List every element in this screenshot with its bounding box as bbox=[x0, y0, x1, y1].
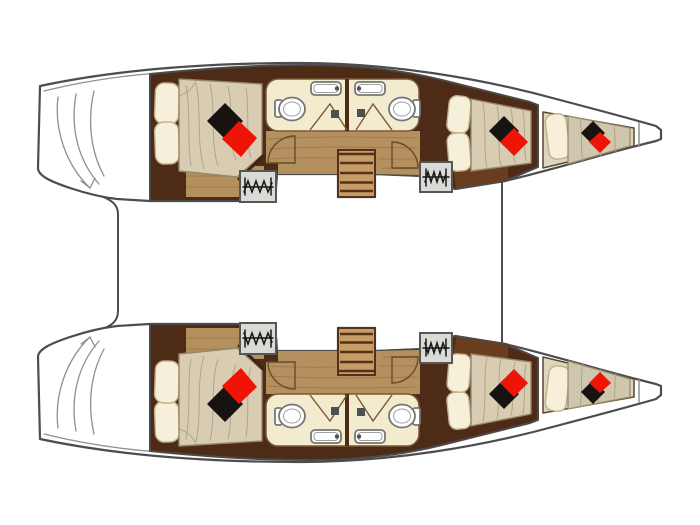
faucet-dot bbox=[335, 86, 339, 90]
shower-drain-square bbox=[331, 110, 339, 118]
pillow bbox=[446, 95, 472, 134]
shower-drain-square bbox=[357, 109, 365, 117]
toilet bbox=[389, 98, 415, 121]
aft-wardrobe bbox=[240, 171, 276, 202]
pillow bbox=[154, 83, 179, 125]
pillow bbox=[154, 122, 179, 165]
forward-wardrobe bbox=[420, 162, 452, 192]
companionway-stairs bbox=[338, 150, 375, 197]
aft-crossbeam-line bbox=[95, 194, 118, 331]
aft-cabin-bed bbox=[154, 79, 263, 179]
catamaran-floor-plan bbox=[0, 0, 700, 525]
boat-plan-canvas bbox=[0, 0, 700, 525]
bathroom-divider-wall bbox=[345, 79, 349, 131]
top-hull bbox=[38, 63, 661, 202]
pillow bbox=[544, 113, 570, 160]
bottom-hull-mirrored bbox=[38, 323, 661, 462]
toilet bbox=[279, 98, 305, 121]
bathrooms bbox=[266, 79, 420, 131]
faucet-dot bbox=[357, 86, 361, 90]
